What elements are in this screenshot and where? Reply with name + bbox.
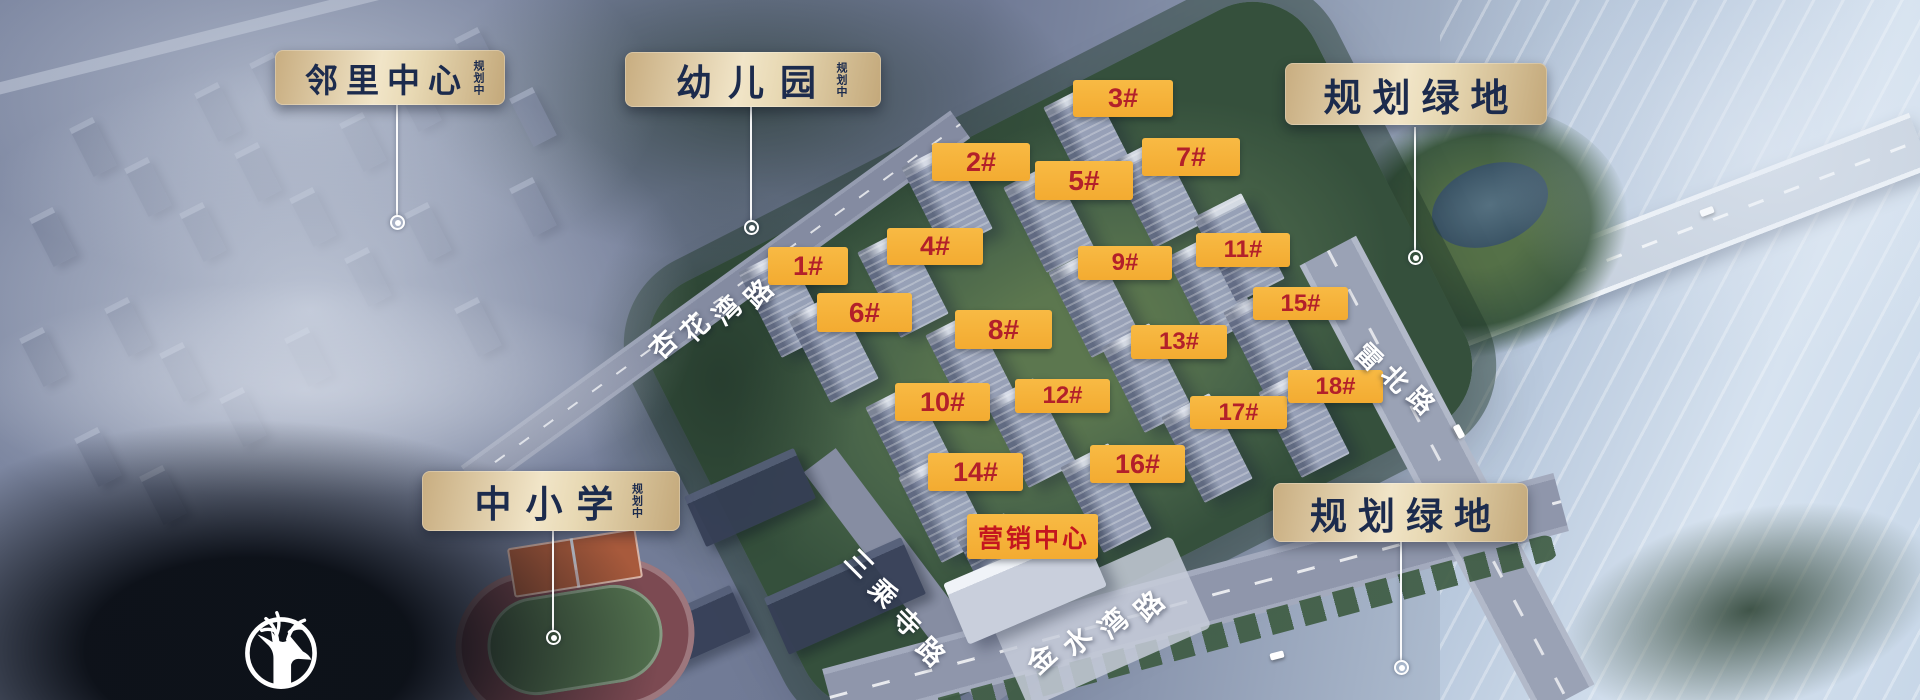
- leader-dot: [744, 220, 759, 235]
- building-number-tag: 13#: [1131, 325, 1227, 359]
- building-number-tag: 6#: [817, 293, 912, 332]
- label-neighborhood-center: 邻里中心 规划中: [275, 50, 505, 105]
- plaque-title: 规划绿地: [1299, 486, 1502, 540]
- building-number-tag: 17#: [1190, 396, 1287, 429]
- label-primary-secondary-school: 中小学 规划中: [422, 471, 680, 531]
- leader-line: [1400, 542, 1402, 660]
- sports-field: [480, 578, 669, 700]
- building-number-tag: 3#: [1073, 80, 1173, 117]
- leader-line: [1414, 127, 1416, 250]
- leader-line: [396, 105, 398, 215]
- masterplan-aerial-view: 1#2#3#4#5#6#7#8#9#10#11#12#13#14#15#16#1…: [0, 0, 1920, 700]
- building-number-tag: 12#: [1015, 379, 1110, 413]
- building-number-tag: 10#: [895, 383, 990, 421]
- building-number-tag: 1#: [768, 247, 848, 285]
- plaque-title: 中小学: [461, 474, 628, 528]
- plaque-status: 规划中: [472, 60, 483, 96]
- leader-dot: [546, 630, 561, 645]
- building-number-tag: 2#: [932, 143, 1030, 181]
- leader-dot: [1394, 660, 1409, 675]
- label-planned-green-north: 规划绿地: [1285, 63, 1547, 125]
- building-number-tag: 11#: [1196, 233, 1290, 267]
- label-kindergarten: 幼儿园 规划中: [625, 52, 881, 107]
- leader-line: [750, 107, 752, 220]
- plaque-status: 规划中: [835, 62, 846, 98]
- label-planned-green-south: 规划绿地: [1273, 483, 1528, 542]
- marketing-center-tag: 营销中心: [967, 514, 1098, 559]
- building-number-tag: 8#: [955, 310, 1052, 349]
- building-number-tag: 14#: [928, 453, 1023, 491]
- building-number-tag: 5#: [1035, 161, 1133, 200]
- plaque-title: 幼儿园: [660, 54, 832, 106]
- plaque-title: 邻里中心: [297, 54, 469, 102]
- building-number-tag: 4#: [887, 228, 983, 265]
- leader-line: [552, 531, 554, 630]
- plaque-status: 规划中: [631, 483, 642, 519]
- leader-dot: [1408, 250, 1423, 265]
- building-number-tag: 9#: [1078, 246, 1172, 280]
- deer-icon: [239, 604, 323, 692]
- leader-dot: [390, 215, 405, 230]
- plaque-title: 规划绿地: [1312, 67, 1519, 122]
- building-number-tag: 15#: [1253, 287, 1348, 320]
- building-number-tag: 16#: [1090, 445, 1185, 483]
- building-number-tag: 7#: [1142, 138, 1240, 176]
